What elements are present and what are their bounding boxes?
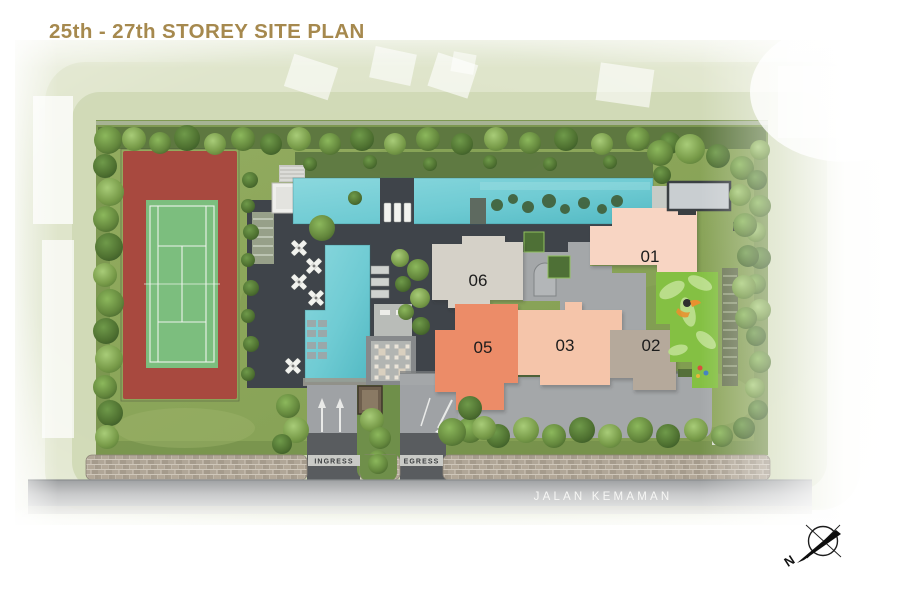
toucan-figure [683,299,691,307]
site-plan-page: 06 01 03 05 02 [0,0,900,592]
egress-label: EGRESS [404,459,440,466]
pool-planter [470,198,486,224]
pool-loungers [371,266,389,298]
block-label-05: 05 [474,338,493,357]
ingress-label: INGRESS [314,459,353,466]
courtyard-hedge [524,232,544,252]
pebble-edge [303,378,370,386]
courtyard-hedge [548,256,570,278]
page-title: 25th - 27th STOREY SITE PLAN [49,20,365,44]
pool-hedge [295,152,653,178]
block-label-03: 03 [556,336,575,355]
block-label-02: 02 [642,336,661,355]
street-name: JALAN KEMAMAN [534,491,673,503]
block-label-01: 01 [641,247,660,266]
tennis-court [121,149,239,401]
site-plan-rendering: 06 01 03 05 02 [0,0,900,592]
block-label-06: 06 [469,271,488,290]
